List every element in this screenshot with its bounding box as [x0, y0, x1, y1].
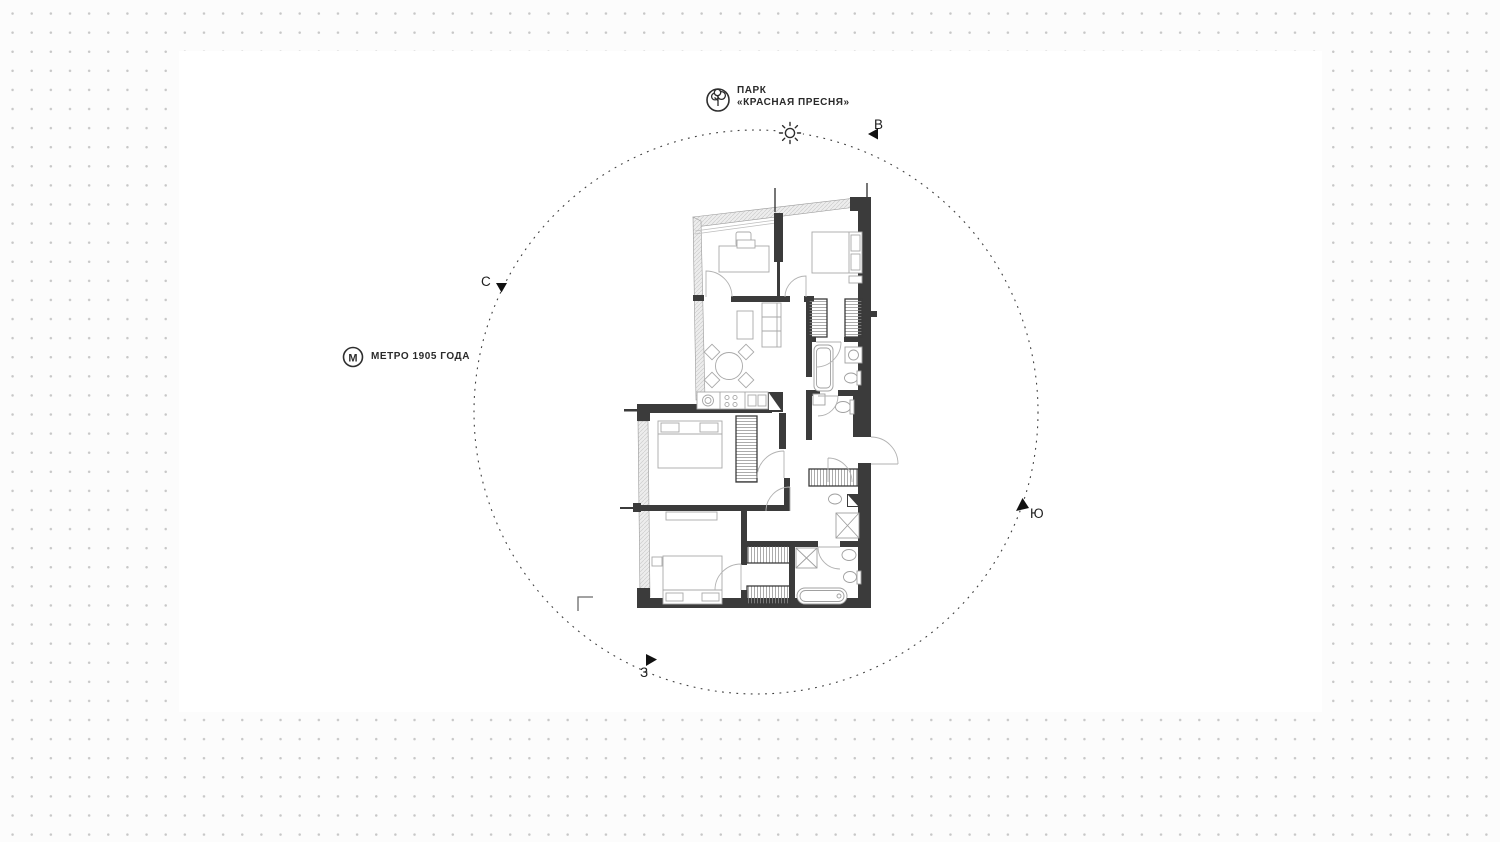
closet [845, 299, 862, 337]
entry-door-arc [871, 437, 898, 464]
closet [747, 586, 790, 604]
office-desk [719, 246, 769, 272]
door-arc [757, 451, 784, 478]
closet [809, 299, 827, 337]
closet [747, 546, 790, 563]
compass-triangle-south [1016, 498, 1029, 511]
wardrobe [736, 416, 757, 482]
chair [704, 344, 720, 360]
sink [829, 494, 842, 504]
metro-icon: М [344, 348, 363, 367]
sink [842, 550, 856, 561]
compass-triangle-north [496, 283, 507, 293]
door-arc [785, 276, 806, 297]
closet [809, 469, 858, 486]
park-label-line2: «КРАСНАЯ ПРЕСНЯ» [737, 97, 850, 109]
office-monitor [737, 240, 755, 248]
coffee-table [737, 311, 753, 339]
kitchen-counter [697, 392, 768, 409]
toilet [836, 402, 851, 413]
canvas: М ПАРК «КРАСНАЯ ПРЕСНЯ» МЕТРО 1905 ГОДА … [0, 0, 1500, 842]
compass-label-west: З [640, 665, 648, 680]
metro-letter: М [348, 353, 357, 365]
chair [704, 372, 720, 388]
toilet [845, 373, 858, 383]
chair [738, 344, 754, 360]
corner-mark-icon [578, 597, 593, 611]
chair [738, 372, 754, 388]
dining-table [716, 353, 743, 380]
sun-icon [777, 120, 803, 146]
compass-label-east: В [874, 117, 883, 132]
park-label-line1: ПАРК [737, 85, 850, 97]
park-label: ПАРК «КРАСНАЯ ПРЕСНЯ» [737, 85, 850, 108]
compass-label-south: Ю [1030, 506, 1044, 521]
door-arc [818, 547, 840, 569]
compass-label-north: С [481, 274, 491, 289]
sofa [762, 303, 781, 347]
floor-plan [620, 183, 898, 608]
nightstand [652, 557, 662, 566]
site-plan-svg: М [0, 0, 1500, 842]
dresser [666, 512, 717, 520]
bench [849, 276, 862, 283]
metro-label: МЕТРО 1905 ГОДА [371, 351, 470, 363]
toilet [844, 572, 857, 583]
door-arc [706, 271, 732, 297]
park-icon [707, 89, 729, 111]
